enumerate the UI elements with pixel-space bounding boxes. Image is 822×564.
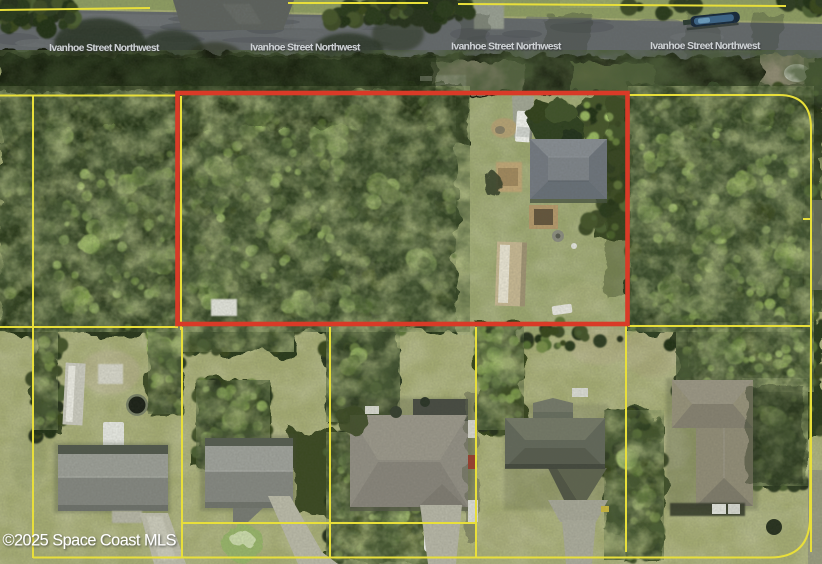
svg-text:Ivanhoe Street Northwest: Ivanhoe Street Northwest — [650, 41, 761, 52]
svg-text:©2025 Space Coast MLS: ©2025 Space Coast MLS — [3, 532, 177, 550]
svg-text:Ivanhoe Street Northwest: Ivanhoe Street Northwest — [250, 42, 361, 53]
svg-text:Ivanhoe Street Northwest: Ivanhoe Street Northwest — [49, 43, 160, 54]
svg-text:Ivanhoe Street Northwest: Ivanhoe Street Northwest — [451, 42, 562, 53]
